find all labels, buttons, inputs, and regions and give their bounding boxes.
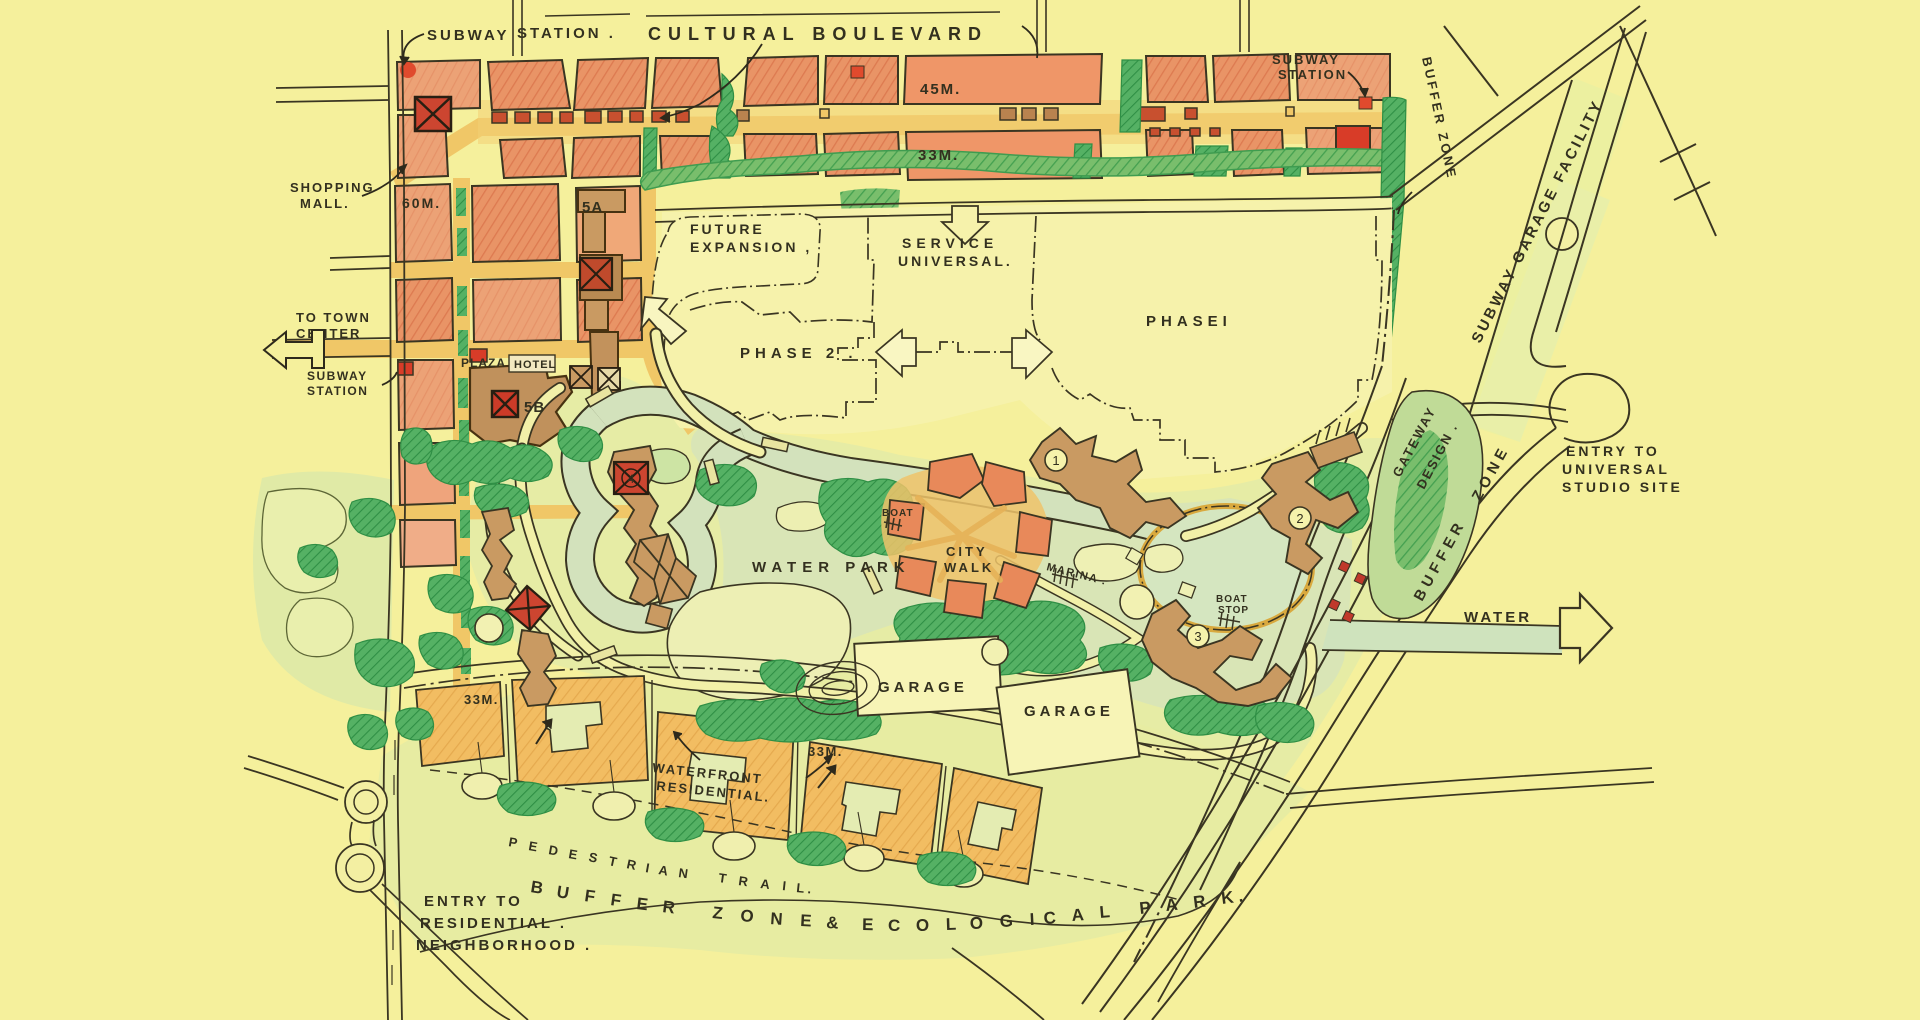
svg-text:PLAZA: PLAZA: [461, 356, 506, 370]
svg-text:MALL.: MALL.: [300, 196, 350, 211]
svg-text:I: I: [1029, 910, 1035, 929]
svg-text:O: O: [969, 914, 983, 933]
svg-text:RESIDENTIAL .: RESIDENTIAL .: [420, 915, 567, 932]
svg-text:A: A: [1164, 895, 1178, 915]
svg-text:L .: L .: [796, 880, 812, 896]
svg-text:NEIGHBORHOOD .: NEIGHBORHOOD .: [416, 937, 592, 954]
svg-text:&: &: [826, 913, 839, 933]
svg-text:WALK: WALK: [944, 560, 994, 575]
svg-text:E: E: [800, 911, 812, 931]
svg-text:WATER: WATER: [1464, 609, 1532, 626]
svg-text:STATION: STATION: [307, 384, 368, 398]
svg-text:3: 3: [1194, 629, 1201, 644]
svg-text:4: 4: [628, 472, 635, 486]
svg-text:CULTURAL BOULEVARD: CULTURAL BOULEVARD: [648, 24, 988, 44]
svg-text:33M.: 33M.: [918, 147, 959, 164]
svg-text:SUBWAY: SUBWAY: [307, 369, 368, 383]
svg-text:K .: K .: [1220, 886, 1244, 908]
svg-text:L: L: [1099, 902, 1111, 922]
svg-text:E: E: [862, 915, 874, 934]
svg-text:GARAGE: GARAGE: [1024, 703, 1114, 720]
svg-text:ENTRY TO: ENTRY TO: [424, 893, 523, 910]
svg-text:R: R: [662, 897, 677, 917]
svg-text:TO TOWN: TO TOWN: [296, 310, 371, 325]
svg-text:C: C: [888, 916, 900, 935]
svg-text:G: G: [999, 911, 1013, 931]
svg-text:SERVICE: SERVICE: [902, 235, 998, 251]
svg-text:P: P: [1138, 898, 1151, 918]
svg-text:A: A: [1071, 905, 1085, 925]
svg-text:O: O: [916, 916, 930, 935]
svg-text:L: L: [945, 915, 956, 934]
svg-text:CENTER: CENTER: [296, 326, 361, 341]
svg-text:PHASE 2 .: PHASE 2 .: [740, 345, 858, 362]
svg-text:WATER PARK: WATER PARK: [752, 559, 911, 576]
svg-text:STOP: STOP: [1218, 605, 1249, 616]
svg-text:O: O: [740, 906, 755, 926]
svg-text:5B: 5B: [524, 399, 545, 416]
svg-text:UNIVERSAL: UNIVERSAL: [1562, 461, 1670, 477]
svg-text:FUTURE: FUTURE: [690, 221, 765, 237]
svg-text:BOAT: BOAT: [882, 508, 914, 519]
svg-text:5A: 5A: [582, 199, 603, 216]
svg-text:STUDIO SITE: STUDIO SITE: [1562, 479, 1683, 495]
svg-text:N: N: [770, 909, 784, 929]
svg-text:2: 2: [1296, 511, 1303, 526]
svg-text:EXPANSION ,: EXPANSION ,: [690, 239, 812, 255]
svg-text:R: R: [1192, 892, 1207, 912]
svg-text:GARAGE: GARAGE: [878, 679, 968, 696]
svg-text:E: E: [636, 894, 650, 914]
svg-text:UNIVERSAL.: UNIVERSAL.: [898, 253, 1013, 269]
svg-text:SUBWAY: SUBWAY: [1272, 52, 1340, 67]
svg-text:CITY: CITY: [946, 544, 988, 559]
svg-text:HOTEL: HOTEL: [514, 359, 556, 371]
svg-text:SUBWAY: SUBWAY: [427, 27, 509, 44]
svg-text:STATION .: STATION .: [517, 25, 616, 42]
svg-text:Z: Z: [712, 903, 724, 923]
svg-text:60M.: 60M.: [402, 195, 441, 211]
svg-text:PHASEI: PHASEI: [1146, 313, 1232, 330]
svg-text:ENTRY TO: ENTRY TO: [1566, 443, 1660, 459]
svg-text:BOAT: BOAT: [1216, 594, 1248, 605]
svg-text:33M.: 33M.: [464, 692, 499, 707]
svg-text:1: 1: [1052, 453, 1059, 468]
svg-text:45M.: 45M.: [920, 81, 961, 98]
svg-text:SHOPPING: SHOPPING: [290, 180, 375, 195]
svg-text:C: C: [1043, 908, 1057, 928]
svg-text:STATION: STATION: [1278, 67, 1347, 82]
